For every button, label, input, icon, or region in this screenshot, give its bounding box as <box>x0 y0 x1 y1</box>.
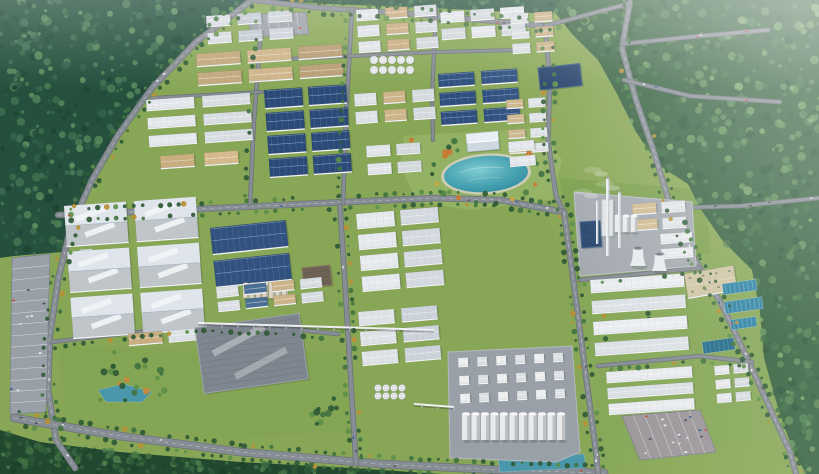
haze-overlay <box>0 0 819 474</box>
screenshot-root <box>0 0 819 474</box>
industrial-park-aerial-render <box>0 0 819 474</box>
